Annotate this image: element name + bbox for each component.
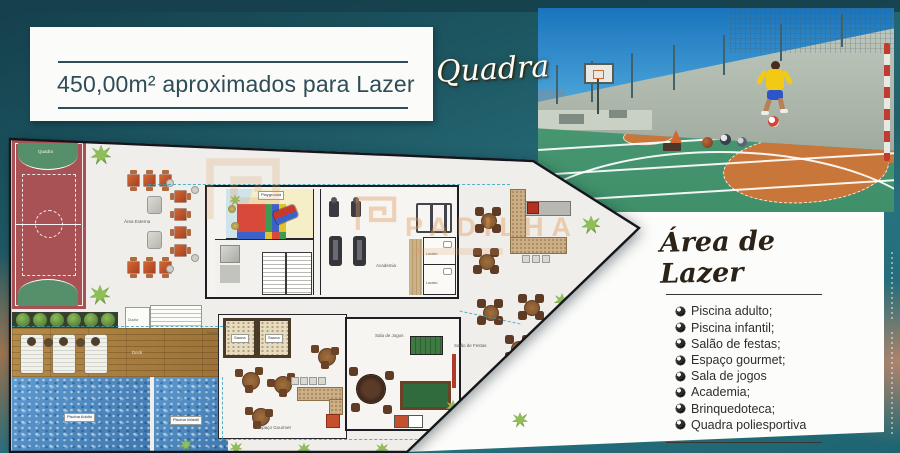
ball-bullet-icon	[676, 420, 685, 429]
terrace-table	[175, 209, 186, 220]
boundary-line	[12, 326, 228, 327]
amenity-label: Sala de jogos	[691, 369, 767, 383]
plan-sports-court: Quadra	[12, 140, 86, 309]
boundary-line	[148, 184, 510, 185]
deck-side-table	[44, 338, 53, 347]
amenities-panel: Área de Lazer Piscina adulto; Piscina in…	[660, 226, 860, 451]
wall-cabinet	[452, 354, 456, 388]
pool-adult-label: Piscina Adulto	[64, 413, 95, 422]
terrace-mat	[147, 231, 162, 249]
vertical-credit-text	[891, 252, 893, 322]
fence-post	[556, 65, 558, 104]
list-item: Salão de festas;	[676, 336, 860, 352]
bar-stool	[309, 377, 317, 385]
terrace-table	[128, 175, 139, 186]
chair	[385, 371, 394, 380]
list-item: Brinquedoteca;	[676, 401, 860, 417]
play-mat	[237, 204, 265, 232]
terrace-table	[175, 245, 186, 256]
amenities-rule-bottom	[666, 442, 822, 443]
pool-table	[400, 381, 451, 410]
amenity-label: Academia;	[691, 385, 750, 399]
terrace-table	[175, 191, 186, 202]
toy-car	[272, 204, 298, 225]
court-photo	[538, 8, 894, 212]
ball	[720, 134, 731, 145]
sun-lounger	[52, 334, 76, 374]
chair	[383, 405, 392, 414]
card-rule-top	[58, 61, 408, 63]
storage-mats	[220, 245, 240, 263]
basketball-pole	[597, 79, 599, 114]
list-item: Sala de jogos	[676, 368, 860, 384]
pouf	[231, 222, 239, 230]
amenities-rule-top	[666, 294, 822, 295]
boy-kicking-ball	[755, 61, 799, 137]
counter-box	[408, 415, 423, 428]
foosball-table	[410, 336, 443, 355]
gourmet-label: Espaço Gourmet	[257, 425, 291, 430]
amenities-title: Área de Lazer	[659, 224, 860, 289]
deck-side-table	[76, 338, 85, 347]
side-table	[166, 265, 174, 273]
counter-box	[394, 415, 409, 428]
list-item: Piscina adulto;	[676, 303, 860, 319]
side-table	[191, 186, 199, 194]
gym-label: Academia	[376, 263, 396, 268]
lavabo-room: Lavabo	[423, 264, 456, 295]
ball-bullet-icon	[676, 372, 685, 381]
treadmill	[353, 236, 366, 266]
gourmet-room: Sauna Sauna Ducha Espaço Gourmet	[218, 314, 347, 439]
wood-deck: Deck	[12, 328, 228, 377]
ball-bullet-icon	[676, 388, 685, 397]
sun-lounger	[20, 334, 44, 374]
bar-stool	[318, 377, 326, 385]
party-table	[518, 294, 544, 320]
shower-label: Ducha	[207, 331, 217, 335]
ball-bullet-icon	[676, 356, 685, 365]
bar-stool	[300, 377, 308, 385]
buffet-counter	[510, 237, 567, 254]
area-card-text: 450,00m² aproximados para Lazer	[57, 71, 415, 98]
party-kitchen	[525, 201, 571, 216]
list-item: Academia;	[676, 384, 860, 400]
deck-label: Deck	[132, 350, 142, 355]
party-table	[473, 248, 499, 274]
terrace-mat	[147, 196, 162, 214]
amenity-label: Quadra poliesportiva	[691, 418, 806, 432]
building-block: Playground Academia Lavabo Lavabo	[205, 185, 459, 299]
side-table	[191, 254, 199, 262]
fence-mesh	[730, 8, 894, 53]
brochure-page: Quadra Área Externa Ducha	[0, 0, 900, 453]
soccer-ball	[768, 116, 779, 127]
party-label: Salão de Festas	[454, 343, 487, 348]
chair	[349, 367, 358, 376]
amenity-label: Brinquedoteca;	[691, 402, 775, 416]
amenities-list: Piscina adulto; Piscina infantil; Salão …	[660, 303, 860, 433]
goal-post	[884, 43, 890, 161]
boundary-line	[222, 377, 223, 439]
terrace-table	[175, 227, 186, 238]
ball-bullet-icon	[676, 404, 685, 413]
side-table	[166, 179, 174, 187]
area-card: 450,00m² aproximados para Lazer	[30, 27, 433, 121]
gourmet-table	[237, 367, 263, 393]
plant	[376, 443, 389, 453]
card-table	[357, 375, 385, 403]
card-rule-bottom	[58, 107, 408, 109]
fence-post	[631, 53, 633, 98]
bar-stool	[291, 377, 299, 385]
pouf	[228, 205, 236, 213]
treadmill	[329, 236, 342, 266]
sauna: Sauna	[257, 318, 291, 358]
ball	[737, 137, 747, 147]
terrace-label: Área Externa	[124, 219, 150, 224]
sun-lounger	[84, 334, 108, 374]
list-item: Quadra poliesportiva	[676, 417, 860, 433]
fence-post	[723, 35, 725, 76]
list-item: Piscina infantil;	[676, 320, 860, 336]
sauna: Sauna	[223, 318, 257, 358]
lavabo-room: Lavabo	[423, 237, 456, 266]
games-room: Sala de Jogos	[345, 317, 461, 431]
equipment-box	[663, 143, 681, 151]
plant	[581, 215, 600, 234]
weight-station	[416, 203, 452, 233]
ball-bullet-icon	[676, 339, 685, 348]
terrace-table	[128, 262, 139, 273]
training-cone	[670, 130, 682, 143]
playroom-label: Playground	[258, 191, 284, 200]
pool-kids-label: Piscina Infantil	[170, 416, 202, 425]
ball-bullet-icon	[676, 323, 685, 332]
basketball-backboard	[584, 63, 614, 84]
bar-stool	[522, 255, 530, 263]
gourmet-table	[313, 343, 339, 369]
exercise-bike	[329, 201, 339, 217]
stove	[527, 202, 539, 214]
ball-bullet-icon	[676, 307, 685, 316]
gym-academia: Academia Lavabo Lavabo	[320, 189, 454, 295]
court-label: Quadra	[38, 149, 53, 154]
staircase	[262, 252, 312, 295]
amenity-label: Espaço gourmet;	[691, 353, 786, 367]
bar-stool	[542, 255, 550, 263]
stair-hall	[215, 239, 314, 295]
party-table	[477, 299, 503, 325]
wall-equipment	[609, 110, 627, 118]
terrace-table	[144, 262, 155, 273]
plant	[90, 285, 111, 306]
corridor-floor	[409, 239, 422, 295]
amenity-label: Salão de festas;	[691, 337, 781, 351]
amenity-label: Piscina adulto;	[691, 304, 772, 318]
quadra-script-title: Quadra	[435, 49, 550, 90]
fence-post	[673, 45, 675, 90]
gourmet-counter	[329, 399, 343, 415]
plant	[91, 145, 112, 166]
party-table	[475, 207, 501, 233]
pool-kids	[154, 377, 228, 451]
stove	[326, 414, 340, 428]
games-label: Sala de Jogos	[375, 333, 404, 338]
bar-stool	[532, 255, 540, 263]
plant	[298, 443, 311, 453]
plant	[230, 442, 243, 453]
chair	[351, 403, 360, 412]
exercise-bike	[351, 201, 361, 217]
amenity-label: Piscina infantil;	[691, 321, 774, 335]
basketball	[702, 137, 713, 148]
vertical-credit-text	[891, 332, 893, 437]
wall-equipment	[559, 114, 584, 124]
court-wall-lower	[538, 110, 652, 130]
list-item: Espaço gourmet;	[676, 352, 860, 368]
playroom-brinquedoteca: Playground	[226, 189, 314, 239]
